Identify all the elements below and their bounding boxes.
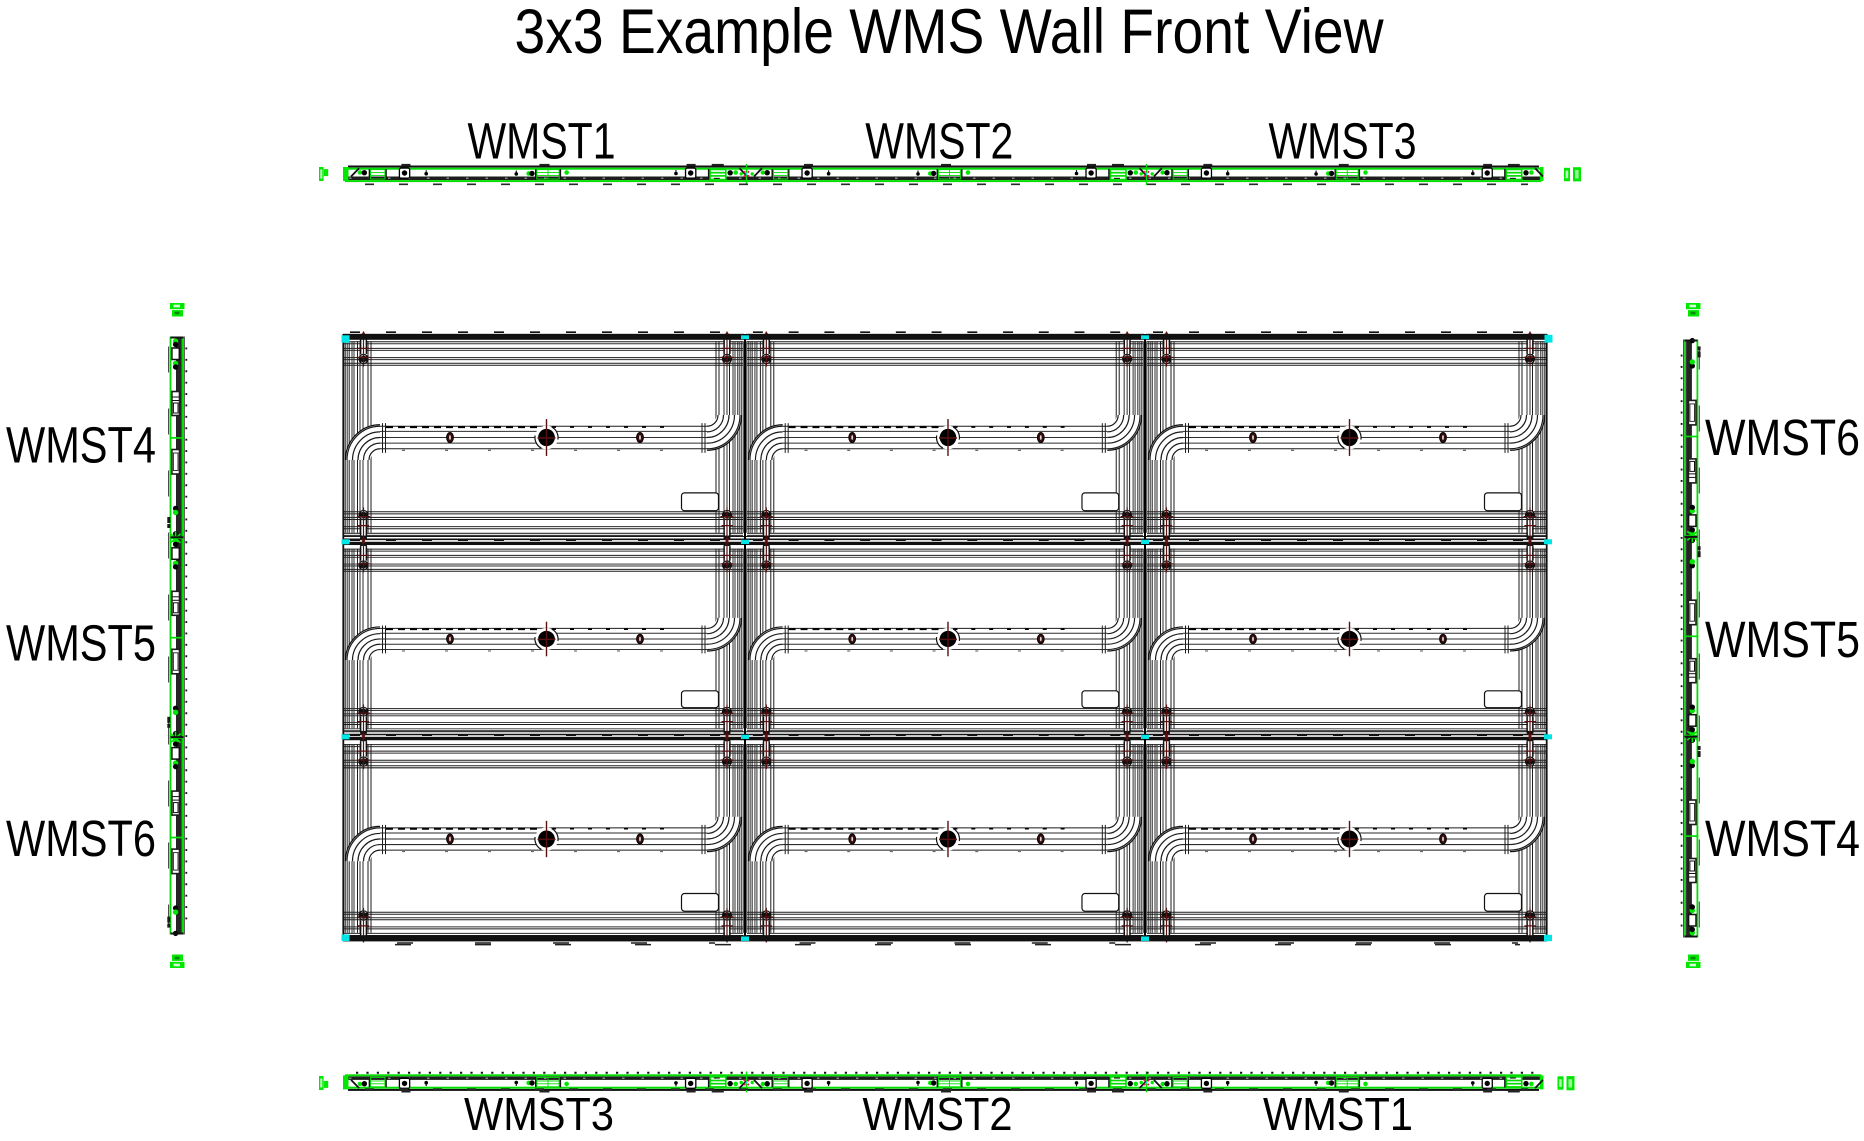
svg-text:WMST1: WMST1 [468,113,616,170]
svg-text:WMST5: WMST5 [6,615,156,672]
svg-text:WMST2: WMST2 [863,1088,1013,1140]
svg-text:WMST2: WMST2 [865,113,1013,170]
svg-text:WMST6: WMST6 [1705,409,1860,466]
svg-text:WMST5: WMST5 [1705,611,1860,668]
svg-text:WMST3: WMST3 [1269,113,1417,170]
svg-text:WMST1: WMST1 [1263,1088,1413,1140]
svg-text:WMST4: WMST4 [1705,810,1860,867]
svg-text:3x3 Example WMS Wall Front Vie: 3x3 Example WMS Wall Front View [515,0,1384,67]
svg-text:WMST6: WMST6 [6,810,156,867]
svg-text:WMST3: WMST3 [464,1088,614,1140]
svg-text:WMST4: WMST4 [6,416,156,473]
